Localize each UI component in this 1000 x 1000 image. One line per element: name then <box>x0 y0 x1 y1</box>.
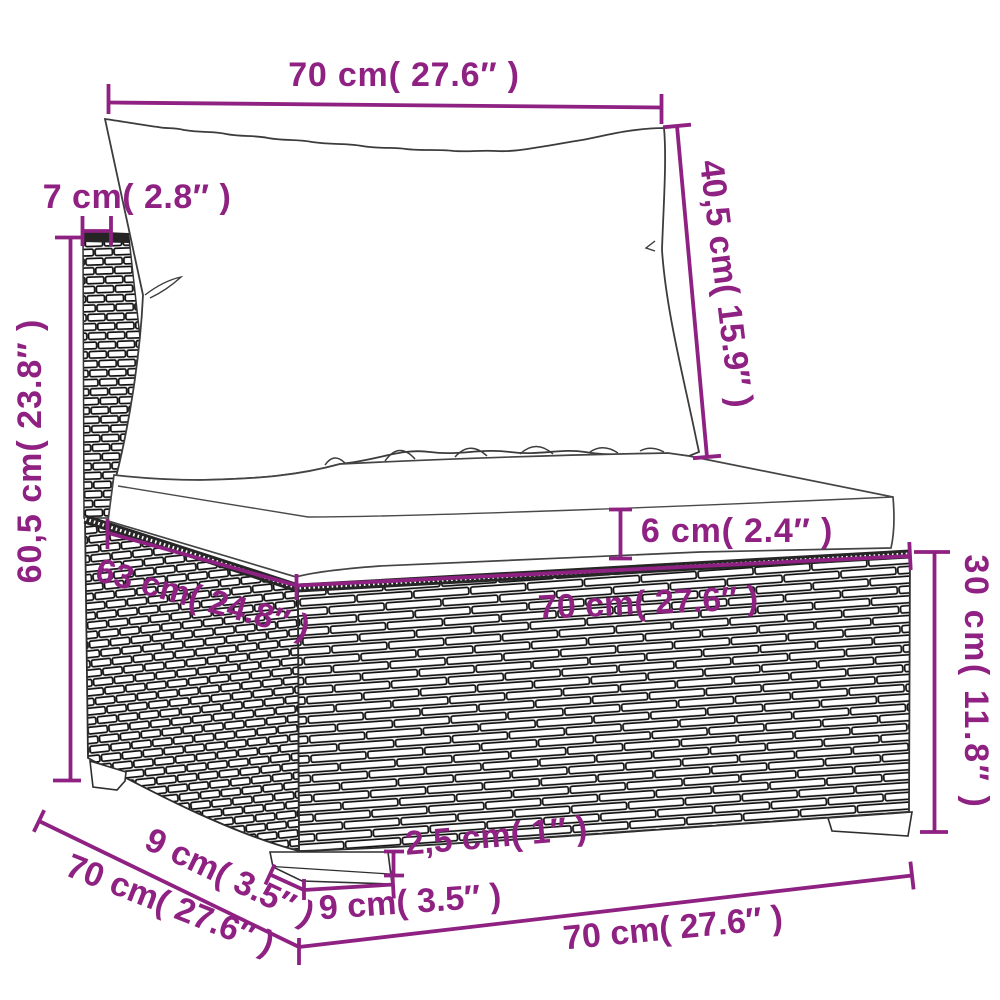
svg-text:60,5 cm( 23.8″ ): 60,5 cm( 23.8″ ) <box>11 319 49 584</box>
svg-text:70 cm( 27.6″ ): 70 cm( 27.6″ ) <box>288 56 520 94</box>
svg-text:6 cm( 2.4″ ): 6 cm( 2.4″ ) <box>641 512 833 550</box>
svg-text:30 cm( 11.8″ ): 30 cm( 11.8″ ) <box>957 555 995 810</box>
svg-text:7 cm( 2.8″ ): 7 cm( 2.8″ ) <box>43 178 232 216</box>
